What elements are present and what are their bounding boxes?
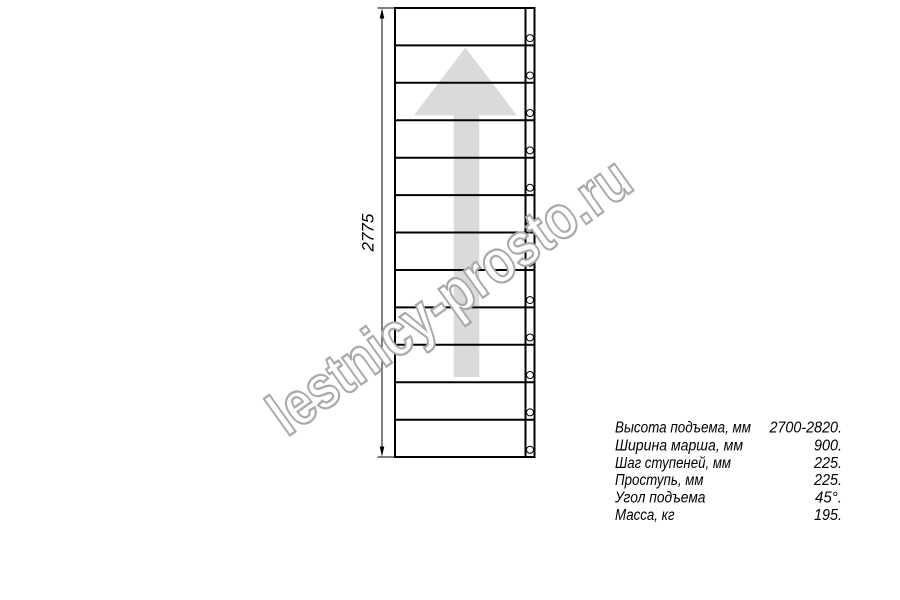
- svg-text:2700-2820.: 2700-2820.: [769, 420, 842, 437]
- svg-text:Шаг ступеней, мм: Шаг ступеней, мм: [615, 455, 731, 472]
- svg-text:Высота подъема, мм: Высота подъема, мм: [615, 420, 751, 437]
- svg-text:lestnicy-prosto.ru: lestnicy-prosto.ru: [255, 144, 644, 449]
- svg-text:900.: 900.: [814, 438, 842, 455]
- svg-text:225.: 225.: [813, 472, 842, 489]
- svg-text:225.: 225.: [813, 455, 842, 472]
- svg-text:2775: 2775: [359, 213, 378, 252]
- svg-text:195.: 195.: [814, 507, 842, 524]
- svg-text:Угол подъема: Угол подъема: [614, 490, 706, 507]
- svg-text:45°.: 45°.: [815, 490, 842, 507]
- svg-text:Масса, кг: Масса, кг: [615, 507, 675, 524]
- svg-text:Ширина марша, мм: Ширина марша, мм: [615, 438, 743, 455]
- svg-text:Проступь, мм: Проступь, мм: [615, 472, 704, 489]
